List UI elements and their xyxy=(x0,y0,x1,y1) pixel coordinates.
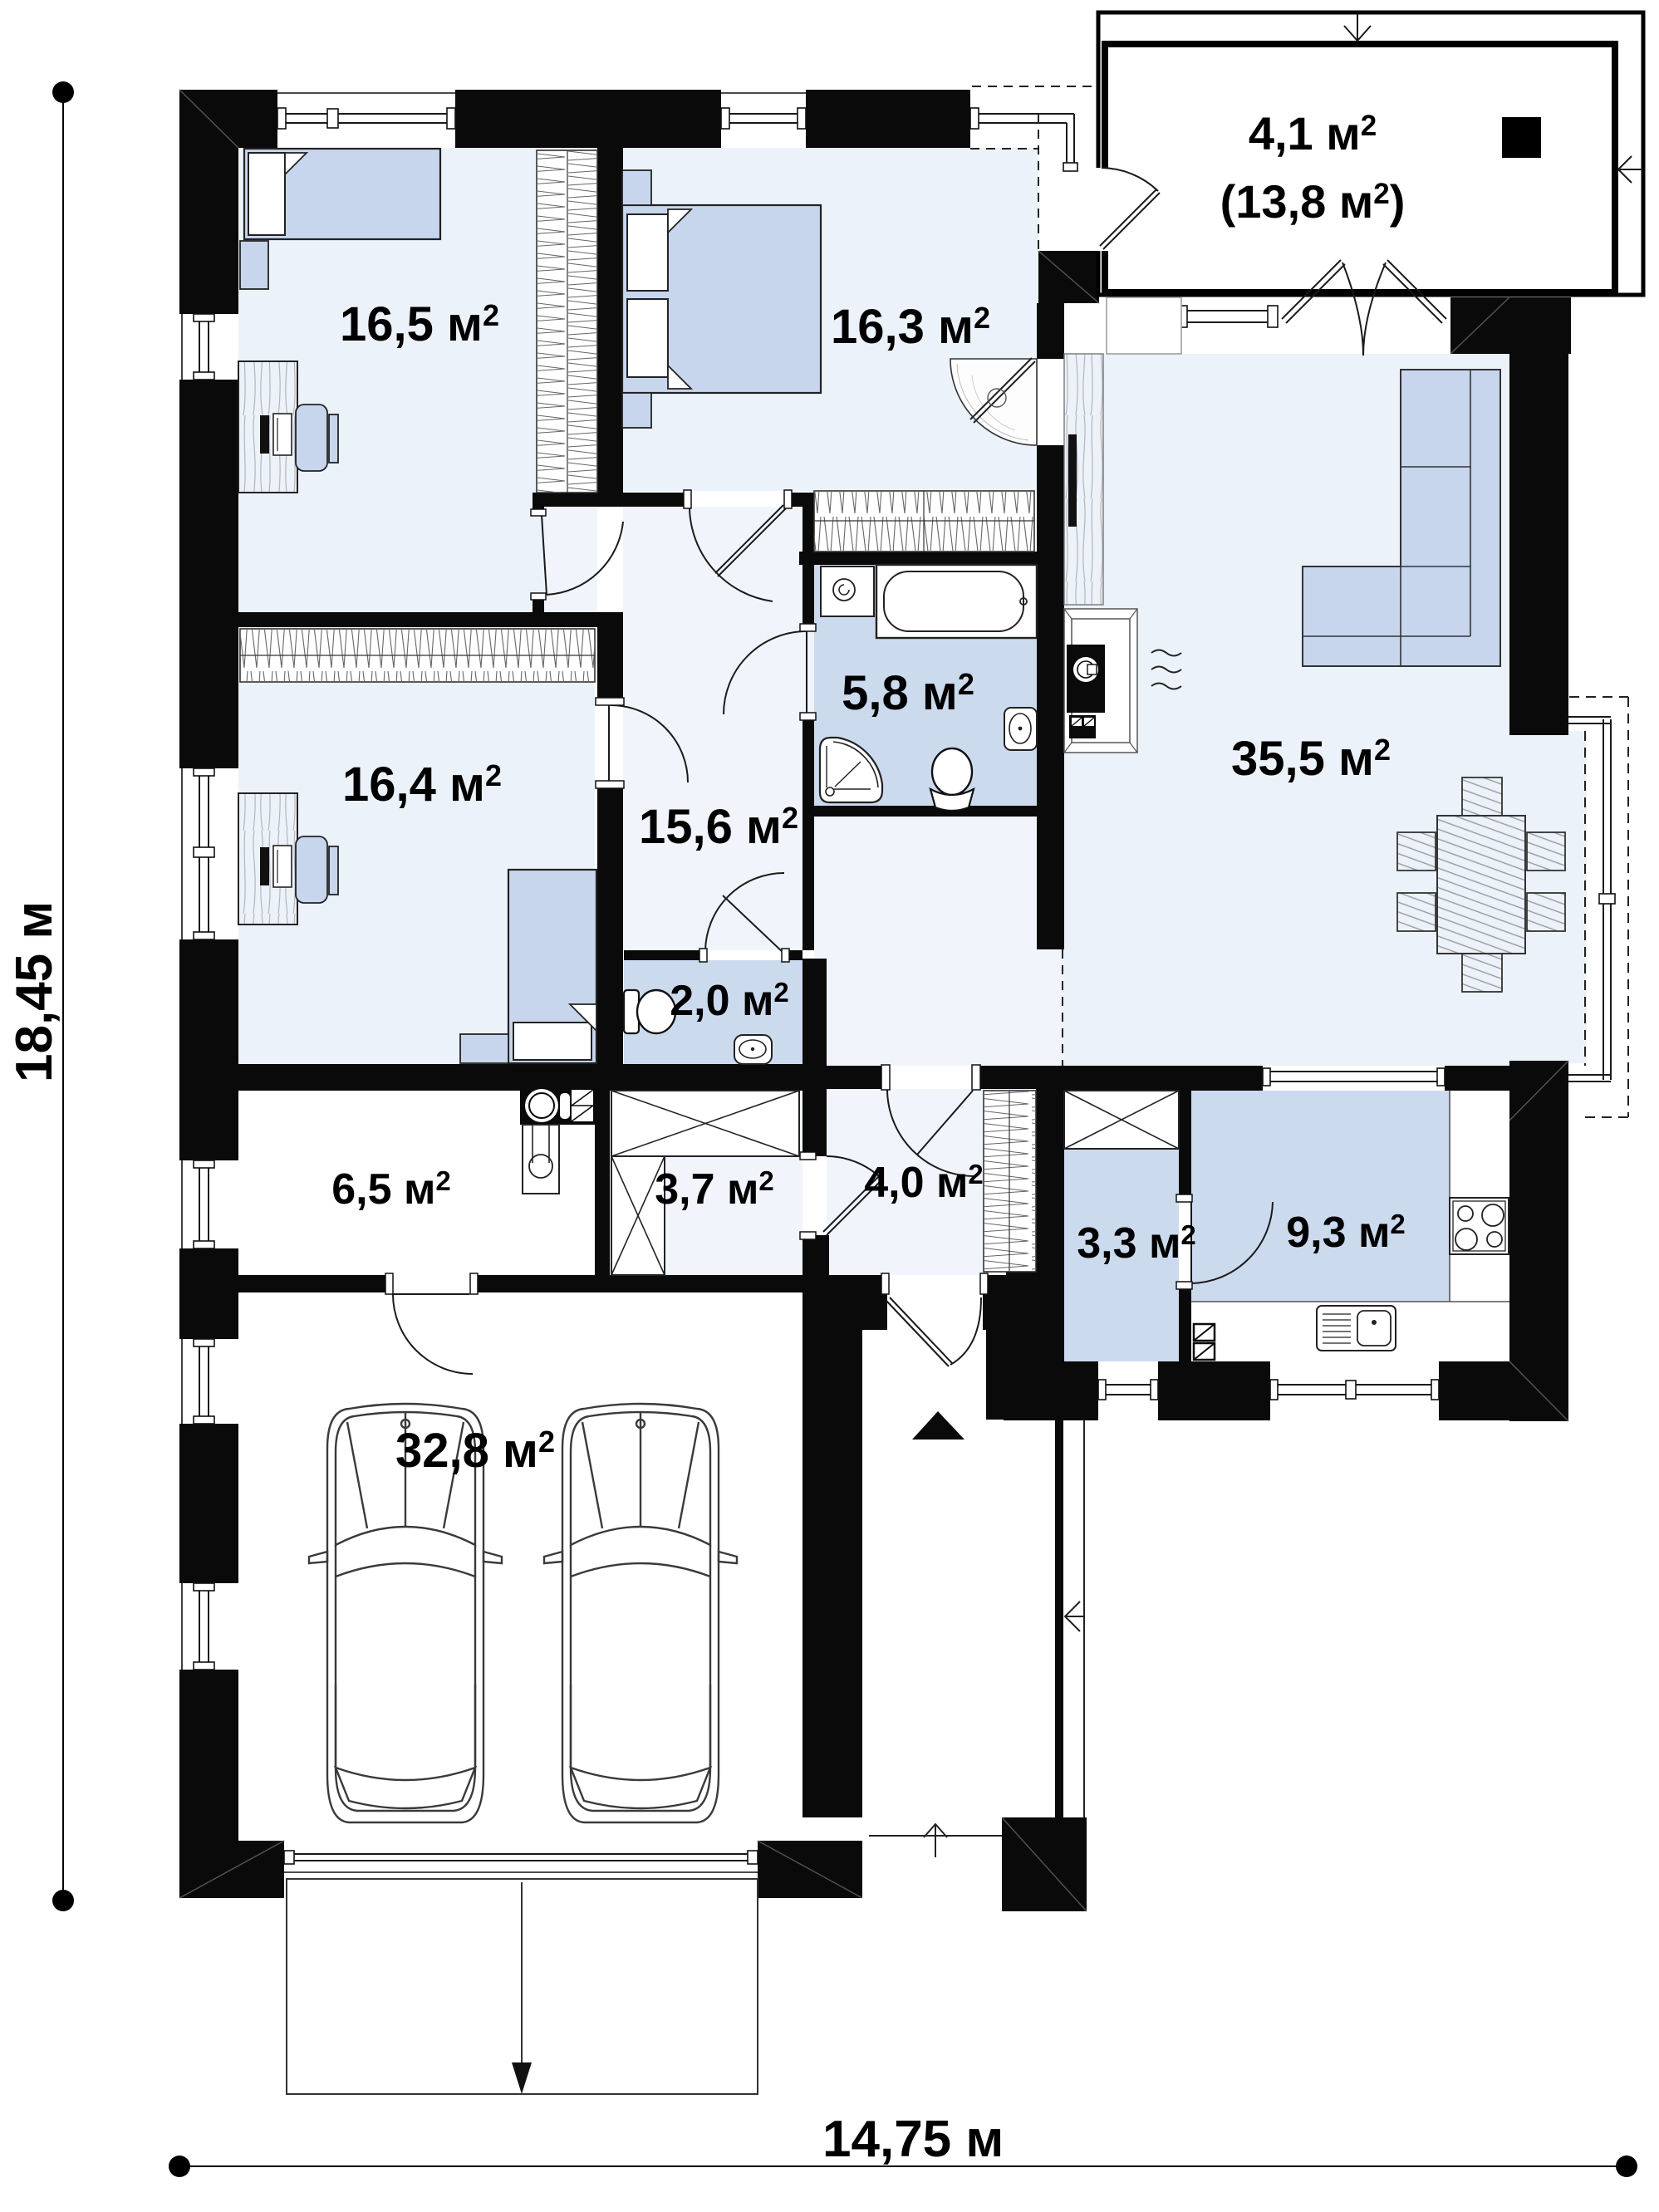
svg-text:2,0 м2: 2,0 м2 xyxy=(670,977,789,1025)
svg-text:16,3 м2: 16,3 м2 xyxy=(831,300,990,354)
svg-text:32,8 м2: 32,8 м2 xyxy=(395,1424,555,1478)
svg-text:3,7 м2: 3,7 м2 xyxy=(655,1165,774,1214)
svg-text:15,6 м2: 15,6 м2 xyxy=(639,800,798,854)
svg-text:16,5 м2: 16,5 м2 xyxy=(340,297,499,351)
svg-text:14,75 м: 14,75 м xyxy=(822,2111,1004,2168)
svg-text:4,0 м2: 4,0 м2 xyxy=(864,1159,984,1207)
svg-text:5,8 м2: 5,8 м2 xyxy=(842,666,974,720)
svg-text:18,45 м: 18,45 м xyxy=(6,901,63,1082)
svg-text:9,3 м2: 9,3 м2 xyxy=(1286,1209,1406,1257)
svg-text:35,5 м2: 35,5 м2 xyxy=(1231,732,1391,786)
svg-text:6,5 м2: 6,5 м2 xyxy=(331,1165,451,1214)
svg-text:4,1 м2: 4,1 м2 xyxy=(1249,107,1377,159)
svg-text:3,3 м2: 3,3 м2 xyxy=(1077,1219,1196,1268)
svg-text:16,4 м2: 16,4 м2 xyxy=(342,758,502,812)
